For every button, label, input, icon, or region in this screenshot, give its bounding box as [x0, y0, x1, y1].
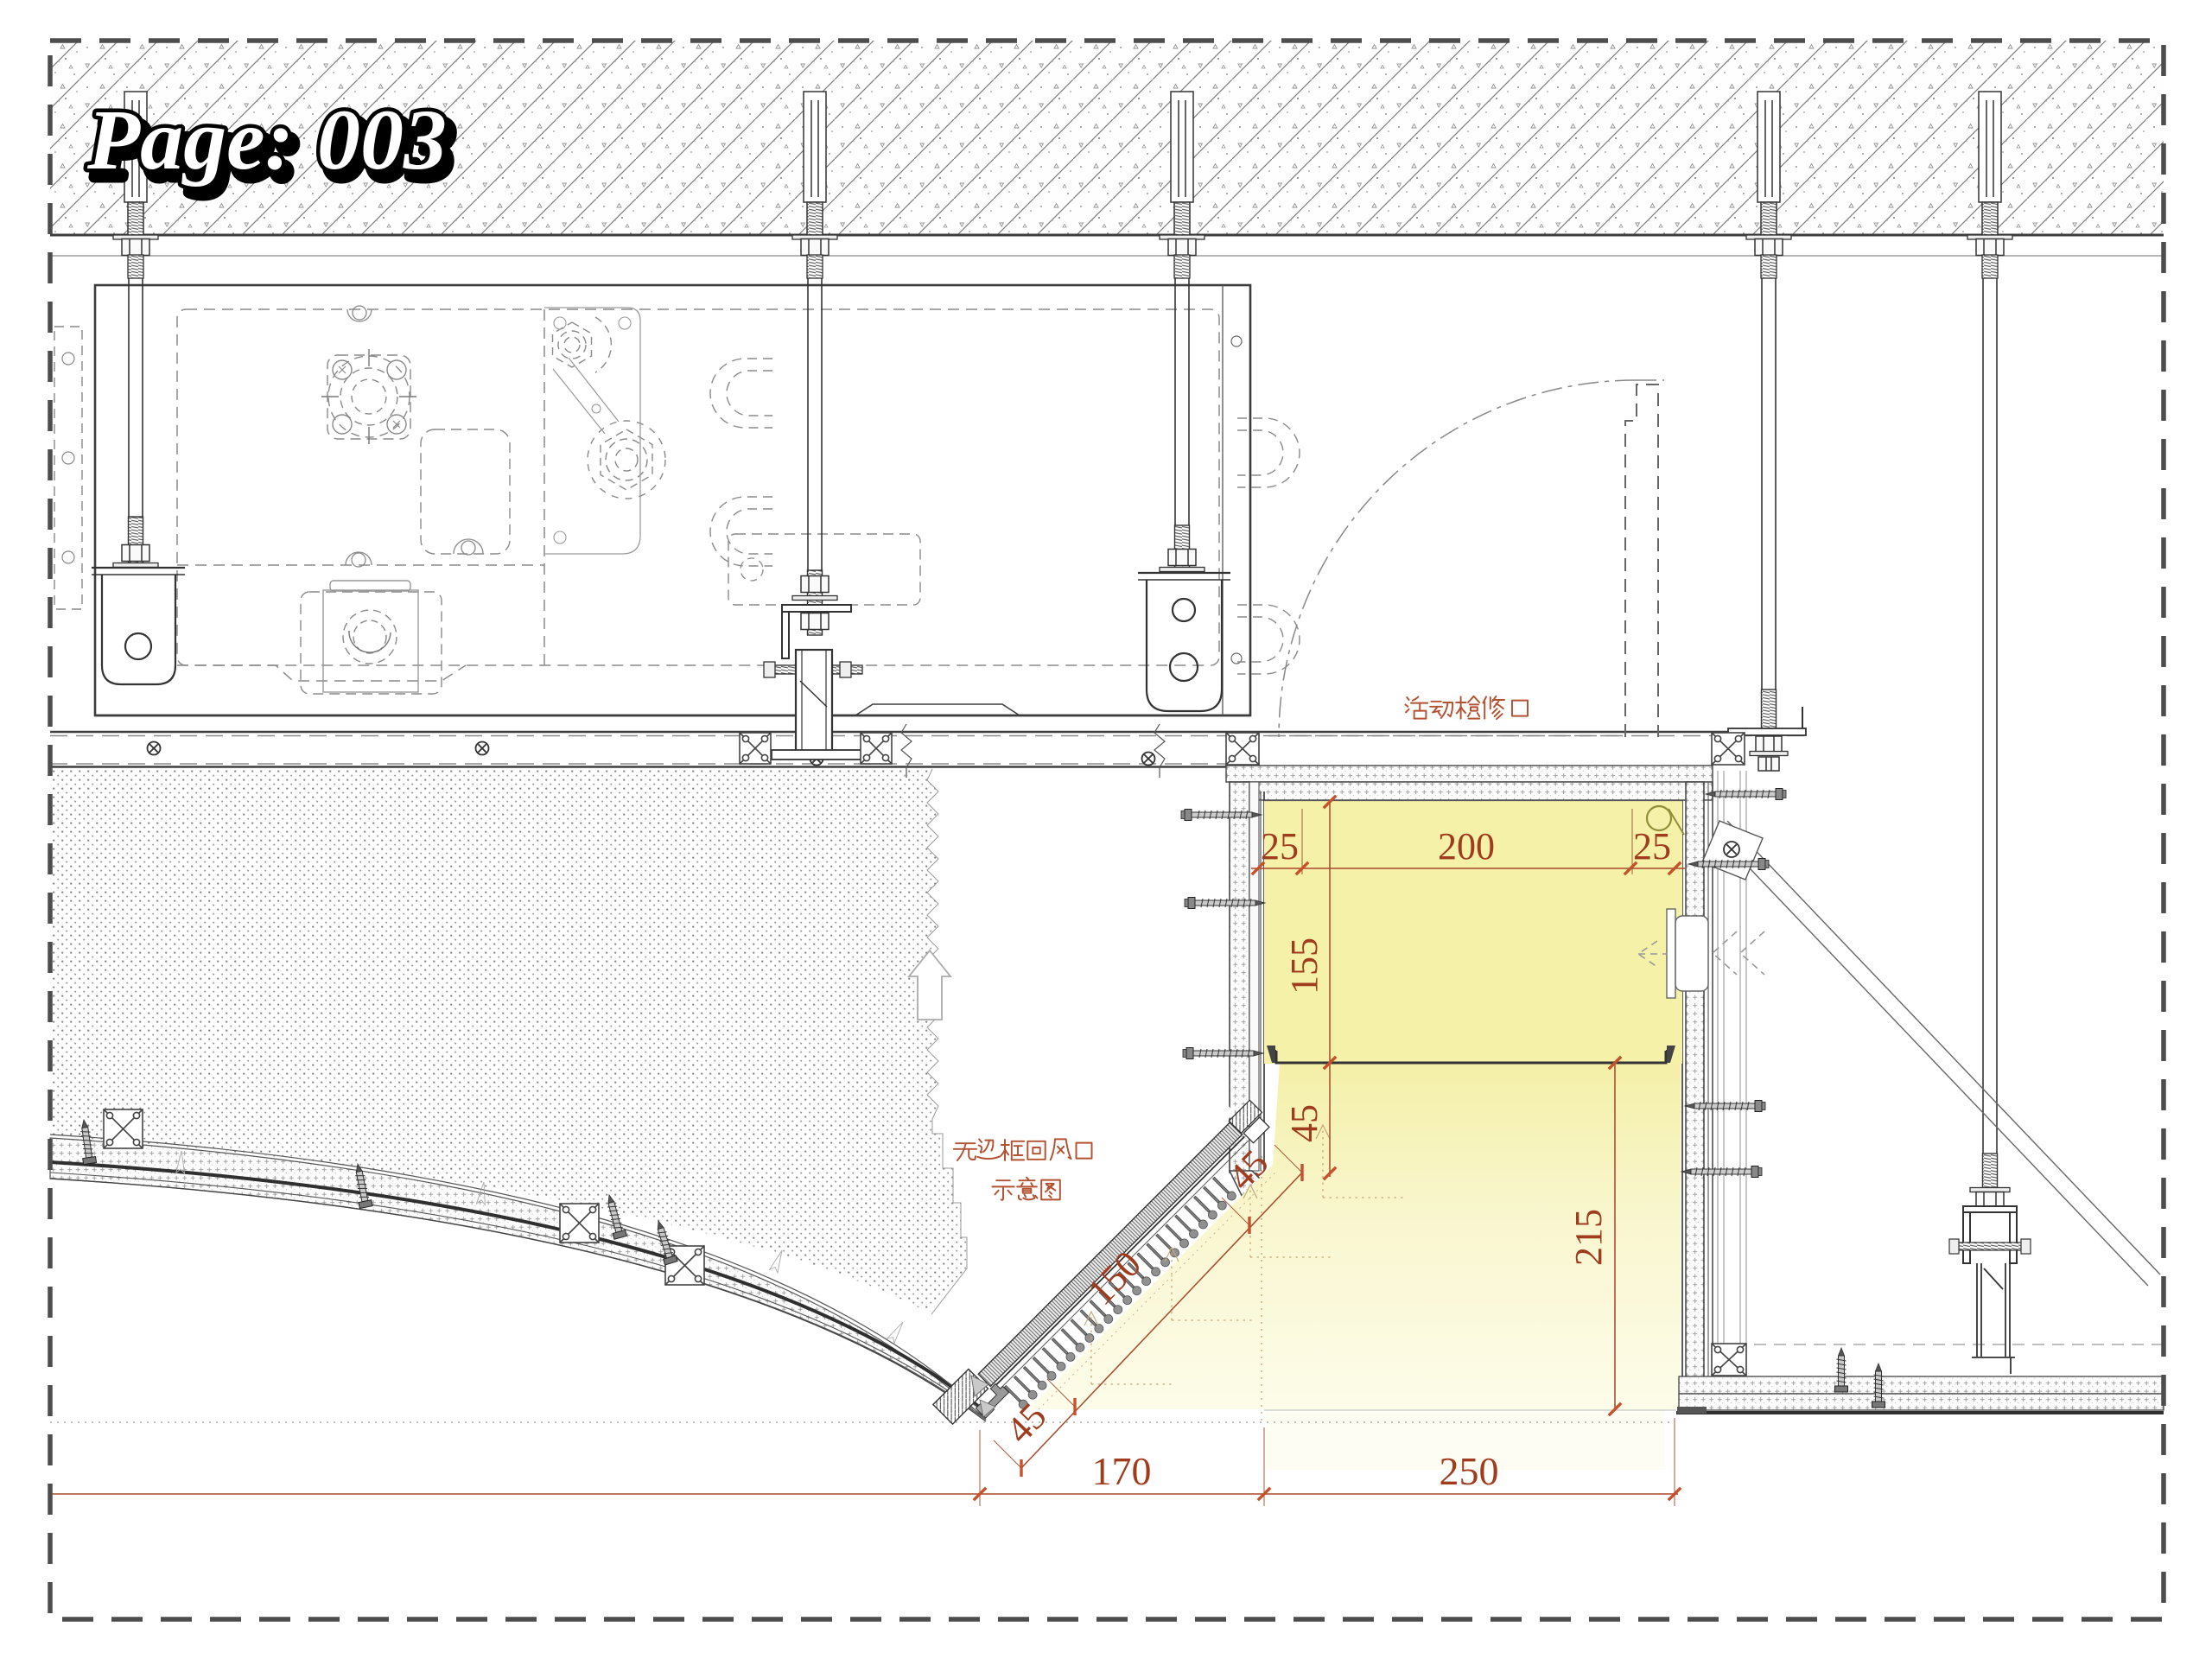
- svg-text:200: 200: [1438, 825, 1495, 868]
- svg-text:Page:: Page:: [86, 92, 294, 188]
- svg-text:215: 215: [1567, 1209, 1610, 1266]
- svg-text:25: 25: [1633, 825, 1671, 868]
- svg-text:45: 45: [1283, 1104, 1325, 1142]
- svg-text:250: 250: [1440, 1449, 1499, 1493]
- svg-text:155: 155: [1283, 938, 1325, 995]
- svg-text:170: 170: [1092, 1449, 1152, 1493]
- svg-text:003: 003: [317, 92, 447, 188]
- svg-text:25: 25: [1261, 825, 1299, 868]
